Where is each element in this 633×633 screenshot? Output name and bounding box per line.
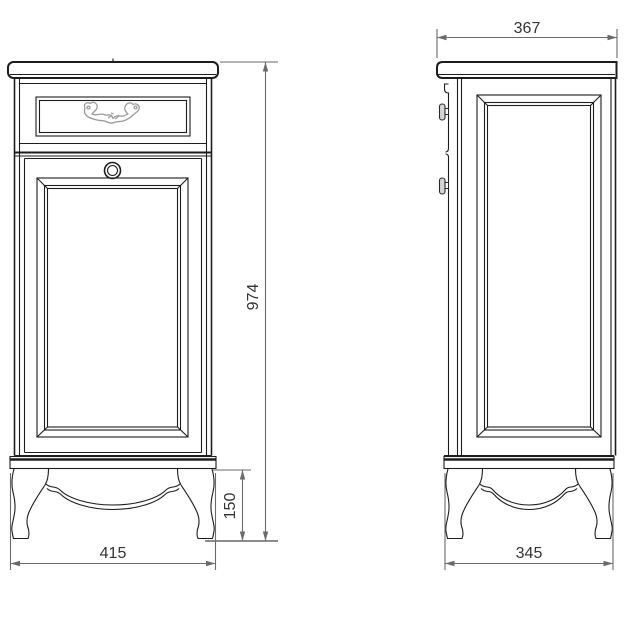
dimension-base-width: 415: [11, 473, 216, 570]
door-knob: [105, 163, 121, 179]
side-front-leg: [446, 469, 483, 539]
side-view-drawing: [437, 62, 617, 539]
side-apron: [480, 484, 578, 510]
door-panel-frame: [37, 178, 188, 437]
front-left-leg: [12, 469, 49, 539]
cabinet-technical-drawing: 367 974 150 415: [0, 0, 633, 633]
cabinet-door: [25, 159, 202, 453]
dimension-label-top-depth: 367: [514, 20, 541, 37]
arrowhead: [445, 561, 455, 566]
arrowhead: [604, 561, 614, 566]
front-base: [10, 457, 216, 539]
door-knob-inner: [108, 166, 118, 176]
side-back-leg: [576, 469, 613, 539]
dimension-base-depth: 345: [445, 473, 613, 570]
drawer-handle-ornament: [84, 102, 139, 123]
arrowhead: [240, 532, 245, 542]
side-countertop: [437, 62, 617, 78]
arrowhead: [11, 561, 21, 566]
dimension-leg-height: 150: [213, 470, 251, 541]
arrowhead: [608, 35, 618, 40]
drawer-recessed-panel: [36, 97, 190, 136]
dimension-label-leg-height: 150: [222, 493, 239, 520]
drawer-recessed-panel-inner: [40, 101, 187, 133]
side-cabinet-body: [444, 78, 616, 456]
front-countertop: [8, 62, 218, 78]
arrowhead: [437, 35, 447, 40]
front-right-leg: [178, 469, 215, 539]
arrowhead: [263, 62, 268, 72]
door-knob-profile: [440, 178, 449, 194]
dimension-label-base-width: 415: [100, 545, 127, 562]
technical-drawing-canvas: 367 974 150 415: [0, 0, 633, 633]
dimension-overall-height: 974: [205, 62, 278, 541]
arrowhead: [263, 532, 268, 542]
dimension-label-base-depth: 345: [516, 545, 543, 562]
drawer-front: [20, 84, 207, 137]
drawer-knob-profile: [440, 104, 449, 120]
drawer-door-separator: [15, 144, 212, 157]
arrowhead: [206, 561, 216, 566]
side-panel-frame: [477, 95, 601, 437]
side-base: [444, 457, 614, 539]
arrowhead: [240, 470, 245, 480]
front-view-drawing: [8, 59, 218, 539]
dimension-label-overall-height: 974: [245, 284, 262, 311]
dimension-top-depth: 367: [437, 20, 617, 58]
front-apron: [46, 484, 180, 510]
